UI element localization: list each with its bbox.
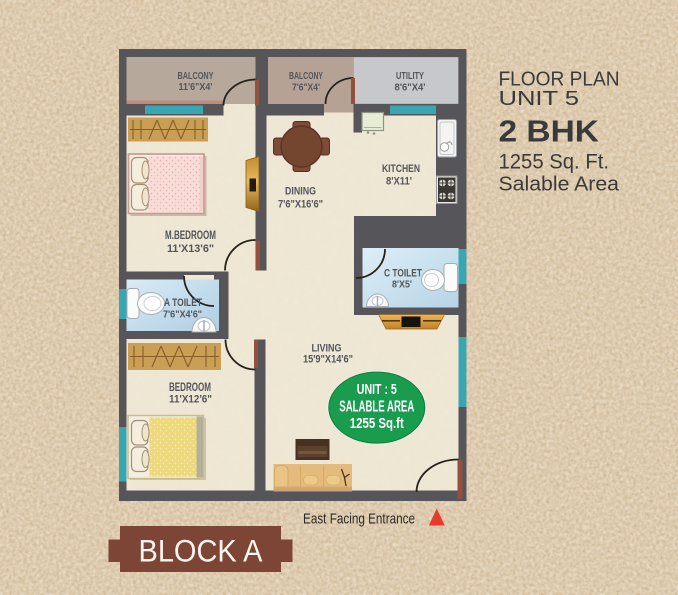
svg-text:7'6"X4': 7'6"X4' — [292, 83, 320, 94]
svg-text:15'9"X14'6": 15'9"X14'6" — [303, 354, 353, 366]
svg-text:1255 Sq.ft: 1255 Sq.ft — [350, 415, 404, 432]
svg-text:2 BHK: 2 BHK — [499, 114, 600, 149]
svg-text:UTILITY: UTILITY — [396, 70, 424, 82]
svg-text:11'X13'6": 11'X13'6" — [167, 243, 214, 255]
svg-text:11'X12'6": 11'X12'6" — [169, 394, 212, 406]
svg-text:East Facing Entrance: East Facing Entrance — [303, 511, 415, 528]
svg-text:DINING: DINING — [285, 186, 316, 198]
svg-text:KITCHEN: KITCHEN — [382, 163, 420, 175]
svg-text:SALABLE AREA: SALABLE AREA — [339, 399, 414, 416]
svg-text:BEDROOM: BEDROOM — [169, 382, 211, 394]
svg-text:M.BEDROOM: M.BEDROOM — [165, 230, 216, 242]
svg-text:7'6"X16'6": 7'6"X16'6" — [278, 199, 323, 211]
svg-text:1255 Sq. Ft.: 1255 Sq. Ft. — [499, 150, 610, 174]
svg-text:7'6"X4'6": 7'6"X4'6" — [163, 309, 202, 321]
svg-text:A TOILET: A TOILET — [164, 297, 202, 309]
svg-text:BLOCK A: BLOCK A — [139, 533, 263, 569]
svg-text:BALCONY: BALCONY — [289, 70, 323, 82]
svg-text:8'X11': 8'X11' — [386, 176, 412, 188]
svg-text:Salable Area: Salable Area — [499, 174, 620, 196]
svg-text:8'X5': 8'X5' — [392, 279, 412, 291]
svg-text:11'6"X4': 11'6"X4' — [179, 82, 213, 93]
svg-text:UNIT : 5: UNIT : 5 — [357, 381, 397, 398]
svg-text:BALCONY: BALCONY — [178, 70, 214, 82]
svg-text:UNIT 5: UNIT 5 — [499, 88, 580, 110]
svg-text:8'6"X4': 8'6"X4' — [395, 83, 426, 94]
